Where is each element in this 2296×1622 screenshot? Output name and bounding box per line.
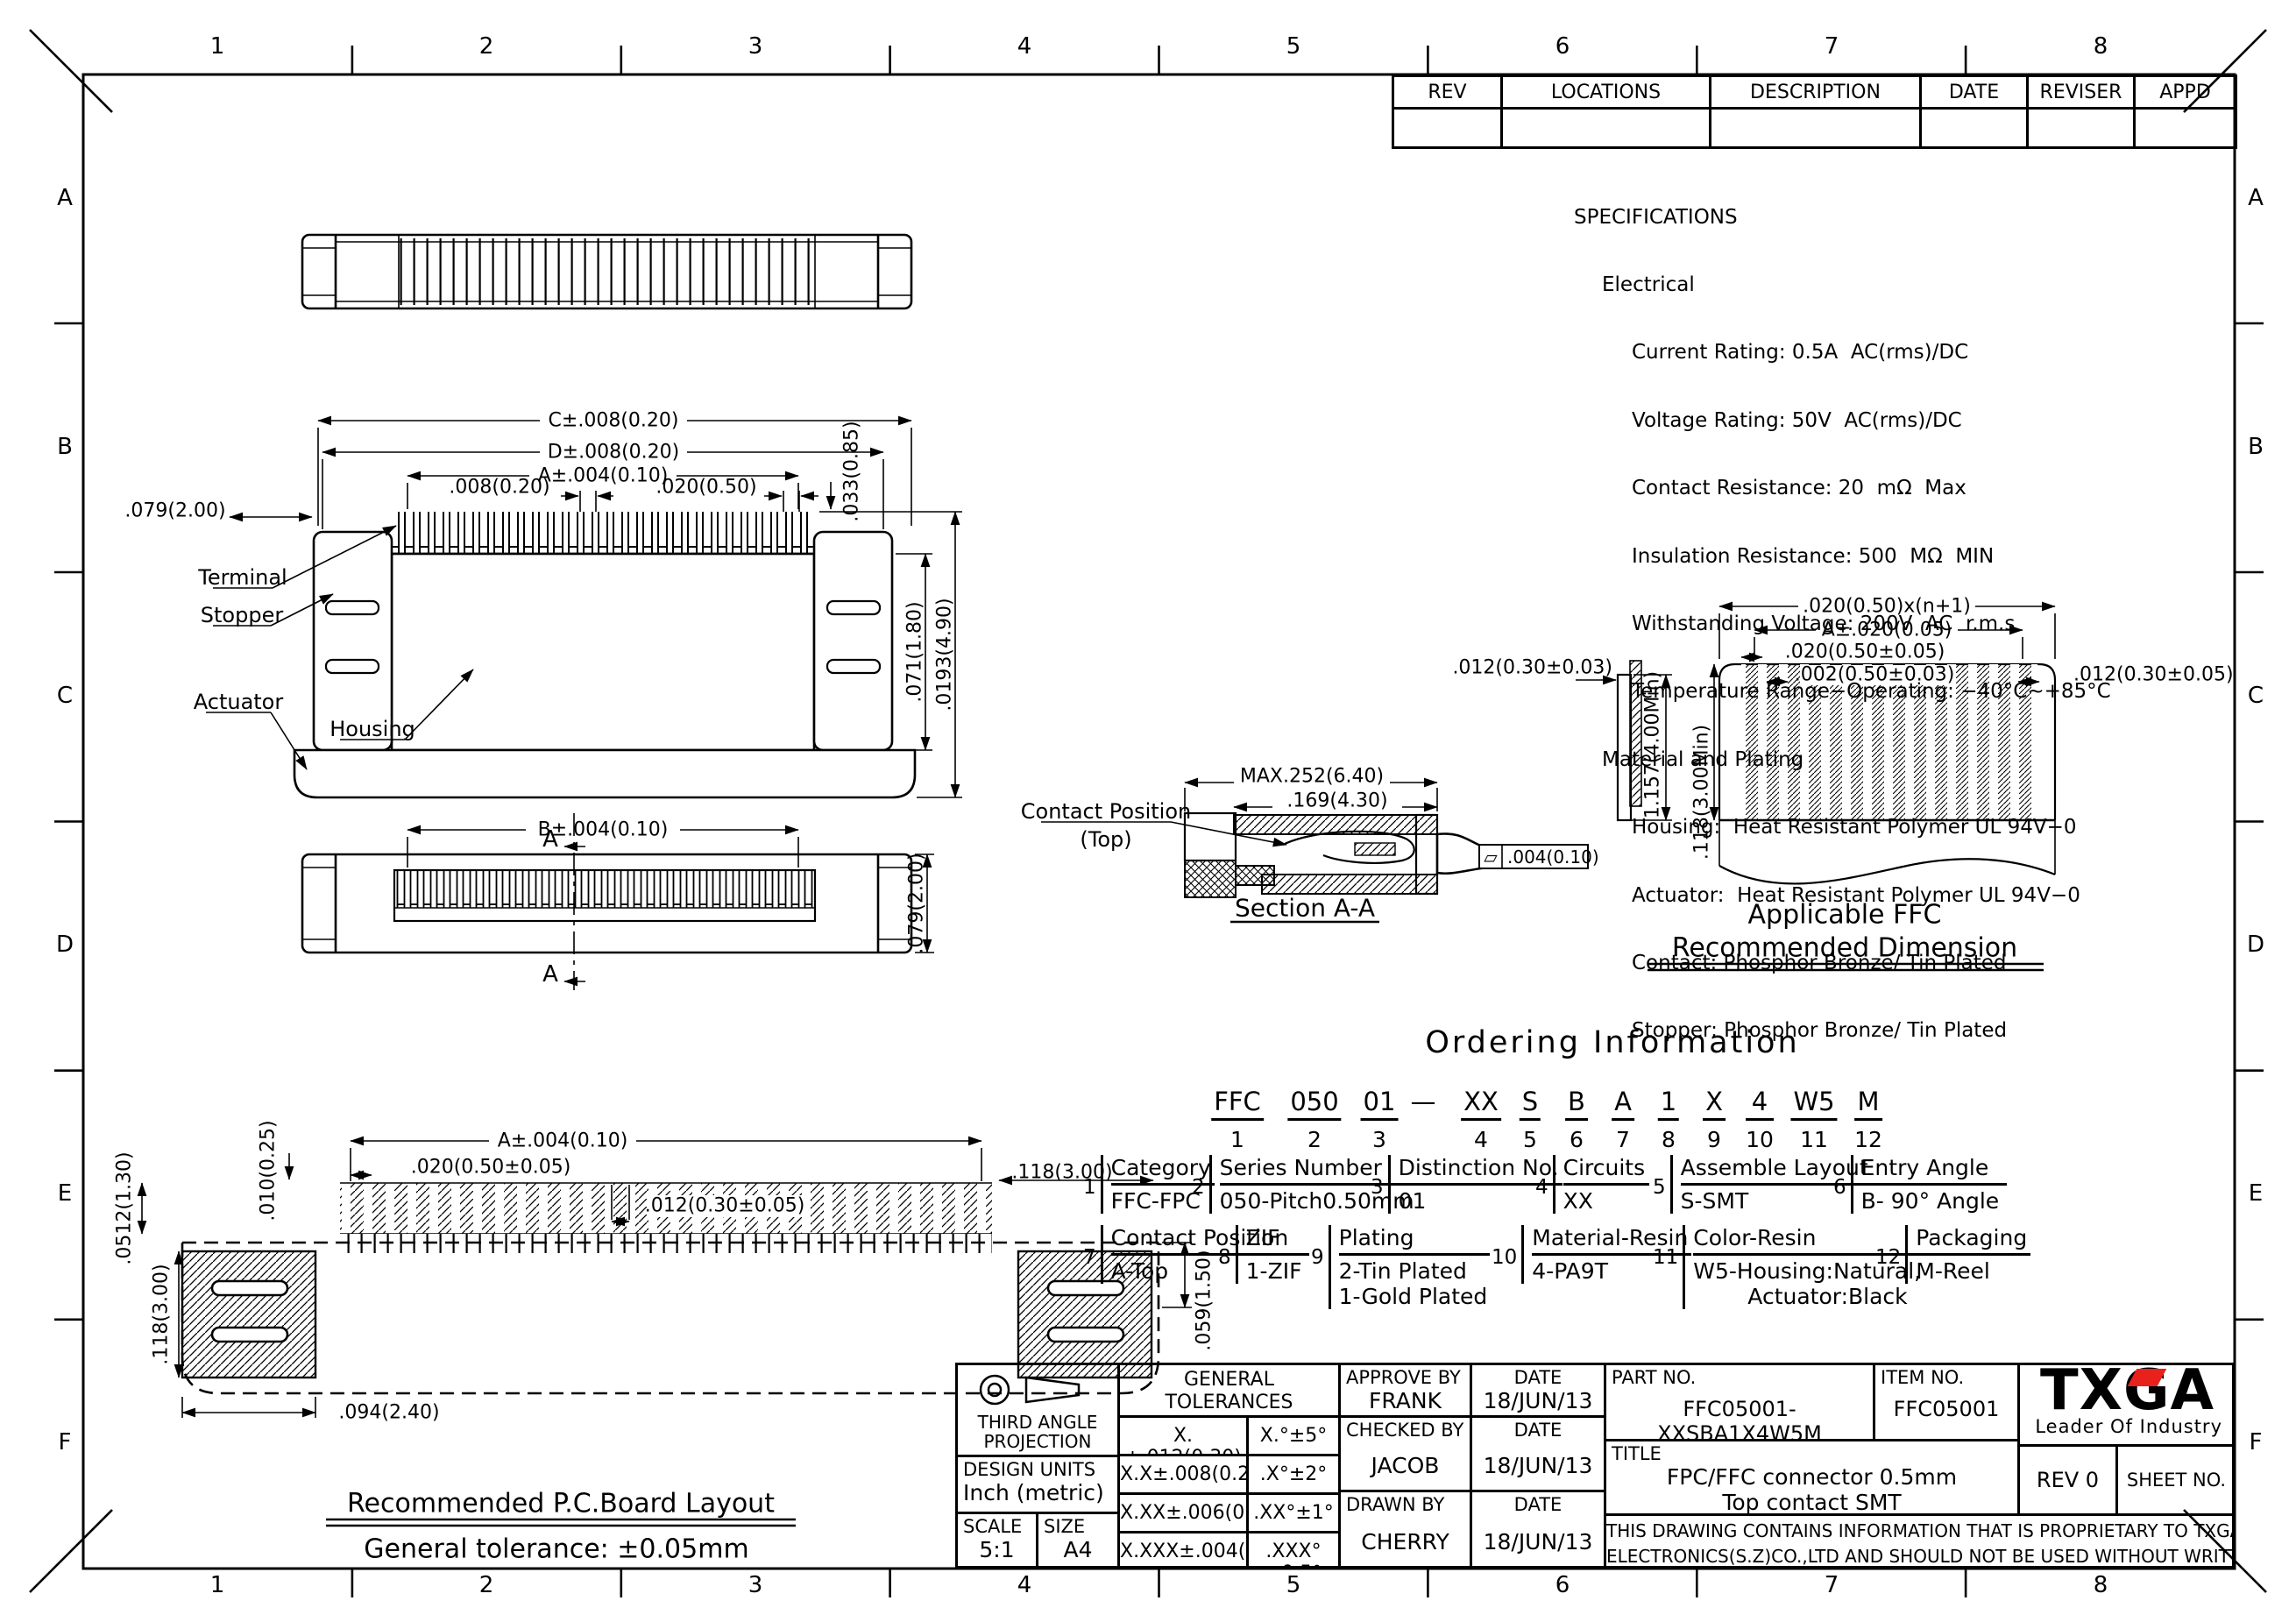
- row-label: E: [2236, 1180, 2275, 1207]
- title-block: THIRD ANGLE PROJECTION DESIGN UNITS Inch…: [955, 1363, 2235, 1569]
- code-text: W5: [1790, 1087, 1837, 1121]
- cell-head: Packaging: [1916, 1225, 2030, 1256]
- tol-linear-1: X.±.012(0.30): [1120, 1418, 1249, 1456]
- cell-num: 9: [1311, 1246, 1324, 1269]
- drawing-title-1: FPC/FFC connector 0.5mm: [1606, 1464, 2017, 1490]
- rev-header: DESCRIPTION: [1711, 76, 1921, 109]
- checked-date: 18/JUN/13: [1472, 1441, 1604, 1478]
- section-view: MAX.252(6.40) .169(4.30) Contact Positio…: [1021, 766, 1599, 923]
- section-mark-top: A: [542, 826, 558, 853]
- approve-label: APPROVE BY: [1341, 1365, 1470, 1388]
- col-label: 5: [1274, 33, 1313, 60]
- cell-value-2: Actuator:Black: [1693, 1284, 1921, 1309]
- code-text: —: [1408, 1087, 1439, 1118]
- pcb-dim-pitch: .020(0.50±0.05): [411, 1157, 571, 1179]
- pcb-dim-094: .094(2.40): [338, 1402, 439, 1424]
- tolerances-header: GENERAL TOLERANCES (UNLESS SPECIFIED): [1120, 1365, 1341, 1418]
- dim-h2: .0193(4.90): [934, 598, 956, 711]
- col-label: 5: [1274, 1572, 1313, 1598]
- spec-line: Insulation Resistance: 500 MΩ MIN: [1632, 546, 2111, 569]
- tol-title-1: GENERAL TOLERANCES: [1165, 1369, 1293, 1413]
- logo-text: TXGA: [2040, 1365, 2215, 1423]
- specs-title: SPECIFICATIONS: [1574, 207, 2111, 230]
- checked-cell: CHECKED BY JACOB: [1341, 1418, 1472, 1492]
- ordering-cell-packaging: 12 Packaging M-Reel: [1875, 1225, 2007, 1284]
- projection-label-2: PROJECTION: [983, 1431, 1091, 1452]
- col-label: 2: [467, 33, 506, 60]
- code-text: 1: [1658, 1087, 1679, 1121]
- code-part: S5: [1520, 1087, 1541, 1152]
- top-view: [302, 235, 911, 308]
- code-text: 4: [1746, 1087, 1774, 1121]
- front-view: C±.008(0.20) D±.008(0.20) A±.004(0.10) .…: [124, 410, 962, 798]
- design-units-label: DESIGN UNITS: [958, 1457, 1117, 1480]
- col-label: 1: [198, 1572, 237, 1598]
- spec-line: Actuator: Heat Resistant Polymer UL 94V−…: [1632, 885, 2111, 908]
- cell-num: 2: [1192, 1176, 1205, 1199]
- flatness-symbol-icon: ▱: [1484, 846, 1498, 868]
- row-label: A: [46, 185, 84, 211]
- code-text: FFC: [1211, 1087, 1264, 1121]
- dim-h1: .071(1.80): [904, 601, 926, 702]
- dim-left: .079(2.00): [124, 500, 225, 522]
- cell-value: XX: [1563, 1188, 1649, 1214]
- code-num: 4: [1461, 1127, 1501, 1152]
- col-label: 8: [2081, 1572, 2120, 1598]
- cell-num: 1: [1083, 1176, 1096, 1199]
- dim-bottom-height: .079(2.00): [906, 853, 928, 953]
- spec-line: Withstanding Voltage: 200V AC r.m.s: [1632, 613, 2111, 636]
- col-label: 3: [736, 33, 775, 60]
- rev-header: LOCATIONS: [1502, 76, 1711, 109]
- notice-line-1: THIS DRAWING CONTAINS INFORMATION THAT I…: [1606, 1520, 2235, 1541]
- spec-line: Contact: Phosphor Bronze/ Tin Plated: [1632, 953, 2111, 975]
- spec-line: Current Rating: 0.5A AC(rms)/DC: [1632, 342, 2111, 365]
- dim-pitch: .020(0.50): [655, 477, 756, 499]
- code-text: 01: [1361, 1087, 1399, 1121]
- row-label: B: [46, 434, 84, 460]
- rev-header: APPD: [2135, 76, 2236, 109]
- code-part: M12: [1854, 1087, 1882, 1152]
- tol-angle-4: .XXX°±0.5°: [1249, 1533, 1341, 1569]
- drawn-date-cell: DATE 18/JUN/13: [1472, 1492, 1606, 1569]
- cell-num: 6: [1833, 1176, 1846, 1199]
- rev-header: REVISER: [2028, 76, 2135, 109]
- revision-row: [1393, 109, 2236, 148]
- part-no-value: FFC05001-XXSBA1X4W5M: [1606, 1388, 1873, 1441]
- cell-num: 10: [1492, 1246, 1517, 1269]
- drawing-title-2: Top contact SMT: [1606, 1490, 2017, 1515]
- title-label: TITLE: [1606, 1441, 2017, 1464]
- code-part: 410: [1746, 1087, 1774, 1152]
- approve-date-cell: DATE 18/JUN/13: [1472, 1365, 1606, 1418]
- scale-label: SCALE: [958, 1514, 1036, 1537]
- tol-angle-2: .X°±2°: [1249, 1456, 1341, 1495]
- cell-head: Entry Angle: [1861, 1155, 2007, 1186]
- drawn-label: DRAWN BY: [1341, 1492, 1470, 1515]
- code-num: 6: [1565, 1127, 1588, 1152]
- code-num: 5: [1520, 1127, 1541, 1152]
- cell-head: Plating: [1339, 1225, 1490, 1256]
- code-num: 3: [1361, 1127, 1399, 1152]
- scale-cell: SCALE 5:1: [958, 1514, 1038, 1569]
- row-label: F: [2236, 1429, 2275, 1456]
- code-dash: —: [1408, 1087, 1439, 1124]
- label-contact-top: (Top): [1080, 827, 1131, 852]
- item-no-value: FFC05001: [1875, 1388, 2017, 1421]
- drawn-name: CHERRY: [1341, 1515, 1470, 1555]
- cell-num: 7: [1083, 1246, 1096, 1269]
- cell-num: 11: [1653, 1246, 1678, 1269]
- col-label: 1: [198, 33, 237, 60]
- code-text: X: [1703, 1087, 1726, 1121]
- code-num: 8: [1658, 1127, 1679, 1152]
- tol-angle-1: X.°±5°: [1249, 1418, 1341, 1456]
- sheet-cell: SHEET NO. 1/5: [2118, 1447, 2235, 1516]
- design-units-cell: DESIGN UNITS Inch (metric): [958, 1457, 1120, 1514]
- ordering-cell-color: 11 Color-Resin W5-Housing:Natural, Actua…: [1653, 1225, 1872, 1309]
- cell-num: 4: [1535, 1176, 1548, 1199]
- cell-value-2: 1-Gold Plated: [1339, 1284, 1490, 1309]
- row-label: C: [46, 683, 84, 709]
- design-units-value: Inch (metric): [958, 1480, 1117, 1505]
- tol-linear-2: X.X±.008(0.20): [1120, 1456, 1249, 1495]
- code-text: XX: [1461, 1087, 1501, 1121]
- cell-value: B- 90° Angle: [1861, 1188, 2007, 1214]
- label-contact-position: Contact Position: [1021, 799, 1191, 824]
- ordering-cell-entry-angle: 6 Entry Angle B- 90° Angle: [1833, 1155, 2007, 1214]
- code-text: M: [1854, 1087, 1882, 1121]
- item-no-cell: ITEM NO. FFC05001: [1875, 1365, 2020, 1441]
- ordering-cell-plating: 9 Plating 2-Tin Plated 1-Gold Plated: [1311, 1225, 1490, 1309]
- dim-169: .169(4.30): [1286, 790, 1387, 812]
- drawn-cell: DRAWN BY CHERRY: [1341, 1492, 1472, 1569]
- bottom-view: B±.004(0.10) A A .079(2.00): [302, 813, 934, 990]
- size-label: SIZE: [1038, 1514, 1117, 1537]
- ordering-cell-material: 10 Material-Resin 4-PA9T: [1492, 1225, 1649, 1284]
- dim-a: A±.004(0.10): [538, 465, 669, 487]
- row-label: F: [46, 1429, 84, 1456]
- part-no-label: PART NO.: [1606, 1365, 1873, 1388]
- approve-cell: APPROVE BY FRANK: [1341, 1365, 1472, 1418]
- spec-line: Temperature Range−Operating: −40°C~+85°C: [1632, 681, 2111, 704]
- pcb-dim-0512: .0512(1.30): [114, 1151, 136, 1264]
- col-label: 8: [2081, 33, 2120, 60]
- code-num: 2: [1287, 1127, 1341, 1152]
- ordering-cell-distinction: 3 Distinction No. 01: [1371, 1155, 1532, 1214]
- code-num: 10: [1746, 1127, 1774, 1152]
- ordering-cell-category: 1 Category FFC-FPC: [1083, 1155, 1190, 1214]
- label-housing: Housing: [330, 717, 415, 741]
- code-num: 7: [1612, 1127, 1634, 1152]
- col-label: 4: [1005, 33, 1044, 60]
- txga-logo: TXGA: [2020, 1365, 2235, 1416]
- logo-cell: TXGA Leader Of Industry: [2020, 1365, 2235, 1447]
- ordering-title: Ordering Information: [1393, 1025, 1832, 1060]
- projection-label-1: THIRD ANGLE: [978, 1412, 1098, 1433]
- cell-value: 1-ZIF: [1246, 1258, 1309, 1284]
- approve-date: 18/JUN/13: [1472, 1388, 1604, 1413]
- code-text: 050: [1287, 1087, 1341, 1121]
- pcb-dim-a: A±.004(0.10): [498, 1130, 628, 1152]
- row-label: A: [2236, 185, 2275, 211]
- spec-line: Housing: Heat Resistant Polymer UL 94V−0: [1632, 817, 2111, 839]
- code-part: W511: [1790, 1087, 1837, 1152]
- rev-header: DATE: [1921, 76, 2028, 109]
- notice-line-2: ELECTRONICS(S.Z)CO.,LTD AND SHOULD NOT B…: [1606, 1546, 2235, 1567]
- drawing-sheet: C±.008(0.20) D±.008(0.20) A±.004(0.10) .…: [0, 0, 2296, 1622]
- rev-cell: REV 0: [2020, 1447, 2118, 1516]
- ordering-cell-assemble: 5 Assemble Layout S-SMT: [1653, 1155, 1830, 1214]
- pcb-dim-010: .010(0.25): [258, 1120, 280, 1221]
- row-label: C: [2236, 683, 2275, 709]
- tol-linear-3: X.XX±.006(0.15): [1120, 1495, 1249, 1533]
- label-terminal: Terminal: [197, 565, 287, 590]
- dim-d: D±.008(0.20): [548, 442, 680, 464]
- row-label: E: [46, 1180, 84, 1207]
- col-label: 6: [1543, 33, 1582, 60]
- col-label: 7: [1812, 1572, 1851, 1598]
- specs-electrical-heading: Electrical: [1602, 274, 2111, 297]
- cell-num: 5: [1653, 1176, 1666, 1199]
- rev-header: REV: [1393, 76, 1502, 109]
- proprietary-notice: THIS DRAWING CONTAINS INFORMATION THAT I…: [1606, 1516, 2235, 1569]
- dim-c: C±.008(0.20): [549, 410, 679, 432]
- drawn-date: 18/JUN/13: [1472, 1515, 1604, 1555]
- scale-value: 5:1: [958, 1537, 1036, 1562]
- col-label: 4: [1005, 1572, 1044, 1598]
- pcb-caption-2: General tolerance: ±0.05mm: [364, 1534, 748, 1565]
- dim-max: MAX.252(6.40): [1240, 766, 1384, 788]
- size-cell: SIZE A4: [1038, 1514, 1120, 1569]
- code-text: A: [1612, 1087, 1634, 1121]
- code-part: X9: [1703, 1087, 1726, 1152]
- cell-head: Circuits: [1563, 1155, 1649, 1186]
- label-stopper: Stopper: [201, 603, 284, 627]
- label-actuator: Actuator: [194, 690, 284, 714]
- code-num: 12: [1854, 1127, 1882, 1152]
- cell-head: ZIF: [1246, 1225, 1309, 1256]
- dim-top: .033(0.85): [841, 421, 863, 521]
- row-label: B: [2236, 434, 2275, 460]
- code-part: 0502: [1287, 1087, 1341, 1152]
- code-text: B: [1565, 1087, 1588, 1121]
- code-part: B6: [1565, 1087, 1588, 1152]
- cell-value: 2-Tin Plated: [1339, 1258, 1490, 1284]
- row-label: D: [46, 931, 84, 958]
- row-label: D: [2236, 931, 2275, 958]
- pcb-dim-118b: .118(3.00): [151, 1264, 173, 1364]
- ordering-cell-contact-position: 7 Contact Position A-Top: [1083, 1225, 1215, 1284]
- tol-angle-3: .XX°±1°: [1249, 1495, 1341, 1533]
- revision-table: REV LOCATIONS DESCRIPTION DATE REVISER A…: [1392, 74, 2237, 149]
- pcb-caption-1: Recommended P.C.Board Layout: [347, 1489, 775, 1519]
- code-part: 18: [1658, 1087, 1679, 1152]
- specifications: SPECIFICATIONS Electrical Current Rating…: [1574, 161, 2111, 1066]
- code-num: 9: [1703, 1127, 1726, 1152]
- checked-date-cell: DATE 18/JUN/13: [1472, 1418, 1606, 1492]
- date-label: DATE: [1472, 1418, 1604, 1441]
- ordering-cell-circuits: 4 Circuits XX: [1535, 1155, 1649, 1214]
- tol-linear-4: X.XXX±.004(0.10): [1120, 1533, 1249, 1569]
- section-caption: Section A-A: [1235, 894, 1375, 923]
- col-label: 3: [736, 1572, 775, 1598]
- col-label: 6: [1543, 1572, 1582, 1598]
- size-value: A4: [1038, 1537, 1117, 1562]
- code-part: FFC1: [1211, 1087, 1264, 1152]
- cell-value: M-Reel: [1916, 1258, 2030, 1284]
- ordering-cell-zif: 8 ZIF 1-ZIF: [1218, 1225, 1309, 1284]
- col-label: 7: [1812, 33, 1851, 60]
- approve-name: FRANK: [1341, 1388, 1470, 1413]
- date-label: DATE: [1472, 1365, 1604, 1388]
- col-label: 2: [467, 1572, 506, 1598]
- code-part: A7: [1612, 1087, 1634, 1152]
- code-num: 1: [1211, 1127, 1264, 1152]
- code-num: 11: [1790, 1127, 1837, 1152]
- spec-line: Contact Resistance: 20 mΩ Max: [1632, 478, 2111, 500]
- cell-num: 12: [1875, 1246, 1901, 1269]
- code-text: S: [1520, 1087, 1541, 1121]
- third-angle-projection-icon: [972, 1371, 1103, 1409]
- checked-label: CHECKED BY: [1341, 1418, 1470, 1441]
- spec-line: Voltage Rating: 50V AC(rms)/DC: [1632, 410, 2111, 433]
- code-part: XX4: [1461, 1087, 1501, 1152]
- pcb-dim-pad: .012(0.30±0.05): [645, 1195, 805, 1217]
- specs-material-heading: Material and Plating: [1602, 749, 2111, 772]
- cell-num: 3: [1371, 1176, 1384, 1199]
- ordering-cell-series: 2 Series Number 050-Pitch0.50mm: [1192, 1155, 1367, 1214]
- item-no-label: ITEM NO.: [1875, 1365, 2017, 1388]
- dim-pitch-small: .008(0.20): [449, 477, 549, 499]
- code-part: 013: [1361, 1087, 1399, 1152]
- title-cell: TITLE FPC/FFC connector 0.5mm Top contac…: [1606, 1441, 2020, 1516]
- section-mark-bottom: A: [542, 961, 558, 988]
- projection-cell: THIRD ANGLE PROJECTION: [958, 1365, 1120, 1457]
- checked-name: JACOB: [1341, 1441, 1470, 1478]
- cell-num: 8: [1218, 1246, 1231, 1269]
- date-label: DATE: [1472, 1492, 1604, 1515]
- part-no-cell: PART NO. FFC05001-XXSBA1X4W5M: [1606, 1365, 1875, 1441]
